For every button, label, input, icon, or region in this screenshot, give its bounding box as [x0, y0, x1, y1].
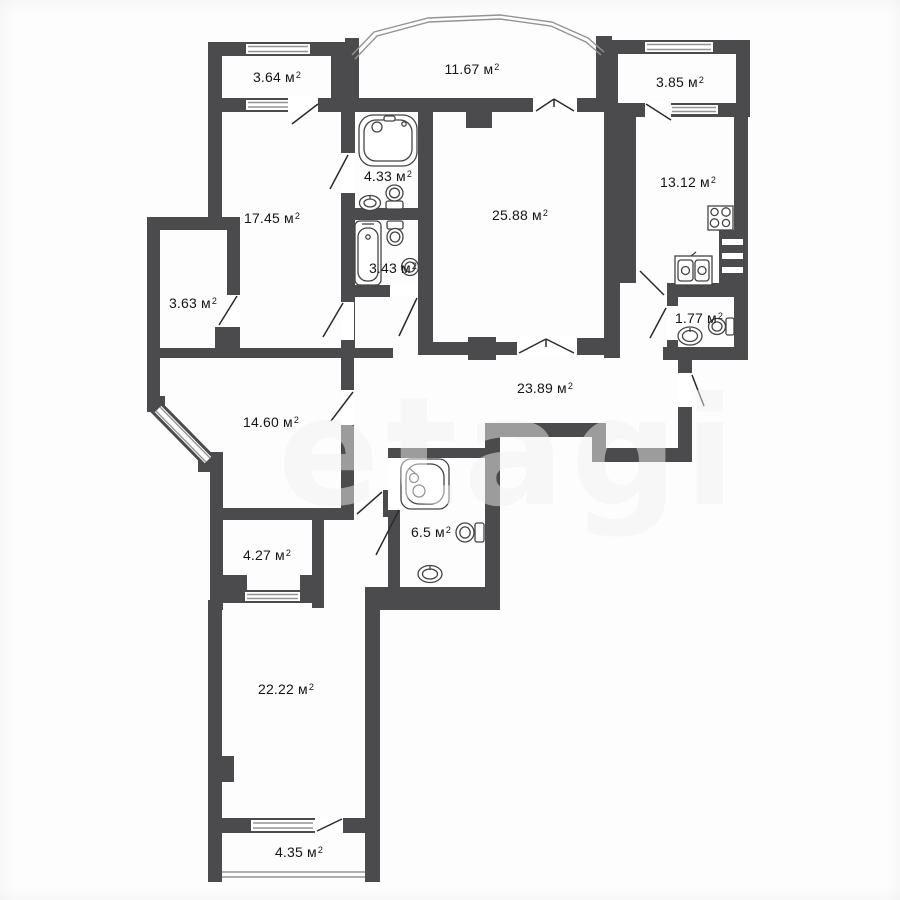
- room-area-label-kitchen: 13.12м2: [660, 174, 716, 190]
- room-area-unit: м: [401, 260, 411, 276]
- room-area-superscript: 2: [412, 261, 417, 271]
- room-area-unit: м: [557, 380, 567, 396]
- room-area-label-wc: 1.77м2: [675, 310, 723, 326]
- room-area-superscript: 2: [212, 296, 217, 306]
- room-area-label-room-upper-left: 17.45м2: [244, 210, 300, 226]
- toilet-icon: [386, 185, 403, 209]
- room-area-label-balcony-bottom: 4.35м2: [275, 844, 323, 860]
- room-area-superscript: 2: [718, 311, 723, 321]
- room-area-value: 17.45: [244, 210, 280, 226]
- room-area-value: 3.63: [169, 295, 197, 311]
- floor-plan: etagi: [0, 0, 900, 900]
- room-area-unit: м: [283, 414, 293, 430]
- corner-washbasin-icon: [359, 115, 417, 166]
- room-area-label-balcony-top-left: 3.64м2: [253, 69, 301, 85]
- room-area-label-room-middle-left: 14.60м2: [243, 414, 299, 430]
- shower-icon: [401, 459, 449, 509]
- room-area-value: 22.22: [258, 681, 294, 697]
- room-area-value: 1.77: [675, 310, 703, 326]
- room-area-label-balcony-top-right: 3.85м2: [656, 74, 704, 90]
- double-sink-icon: [675, 252, 712, 285]
- room-area-superscript: 2: [446, 525, 451, 535]
- room-area-unit: м: [707, 310, 717, 326]
- room-area-superscript: 2: [286, 548, 291, 558]
- room-area-value: 3.64: [253, 69, 281, 85]
- walls-group: [147, 36, 750, 882]
- room-area-label-balcony-top-center: 11.67м2: [444, 61, 499, 77]
- room-area-label-hallway: 23.89м2: [517, 380, 573, 396]
- room-area-value: 4.27: [243, 547, 271, 563]
- floor-plan-drawing: [0, 0, 900, 900]
- washbasin-icon: [418, 566, 442, 583]
- room-area-value: 4.35: [275, 844, 303, 860]
- room-area-value: 3.85: [656, 74, 684, 90]
- room-area-unit: м: [532, 207, 542, 223]
- toilet-icon: [387, 221, 403, 246]
- room-area-superscript: 2: [295, 211, 300, 221]
- room-area-superscript: 2: [568, 381, 573, 391]
- room-area-label-bathroom-upper: 4.33м2: [364, 168, 412, 184]
- room-area-value: 11.67: [444, 61, 479, 77]
- room-area-label-closet: 4.27м2: [243, 547, 291, 563]
- room-area-unit: м: [307, 844, 317, 860]
- stove-icon: [708, 206, 733, 230]
- room-area-value: 23.89: [517, 380, 553, 396]
- room-area-label-storage-left: 3.63м2: [169, 295, 217, 311]
- room-area-unit: м: [396, 168, 406, 184]
- room-area-value: 13.12: [660, 174, 696, 190]
- room-area-value: 14.60: [243, 414, 279, 430]
- room-area-superscript: 2: [407, 169, 412, 179]
- washbasin-icon: [360, 196, 381, 211]
- room-area-superscript: 2: [296, 70, 301, 80]
- room-area-superscript: 2: [711, 175, 716, 185]
- vent-shaft-icon: [722, 239, 743, 273]
- toilet-icon: [456, 523, 484, 542]
- room-area-label-bathroom-lower: 6.5м2: [411, 524, 451, 540]
- room-area-label-living-room: 25.88м2: [492, 207, 548, 223]
- room-area-unit: м: [435, 524, 445, 540]
- room-area-unit: м: [483, 61, 493, 77]
- room-area-superscript: 2: [494, 62, 499, 72]
- room-area-value: 6.5: [411, 524, 431, 540]
- room-area-superscript: 2: [318, 845, 323, 855]
- room-area-value: 4.33: [364, 168, 392, 184]
- room-area-value: 25.88: [492, 207, 528, 223]
- room-area-superscript: 2: [543, 208, 548, 218]
- room-area-unit: м: [275, 547, 285, 563]
- room-area-unit: м: [285, 69, 295, 85]
- room-area-unit: м: [700, 174, 710, 190]
- room-area-superscript: 2: [309, 682, 314, 692]
- room-area-unit: м: [201, 295, 211, 311]
- washbasin-icon: [678, 327, 702, 345]
- room-area-superscript: 2: [699, 75, 704, 85]
- room-area-value: 3.43: [369, 260, 397, 276]
- room-area-unit: м: [298, 681, 308, 697]
- room-area-label-bathroom-middle: 3.43м2: [369, 260, 417, 276]
- room-area-label-bedroom-lower: 22.22м2: [258, 681, 314, 697]
- room-area-unit: м: [688, 74, 698, 90]
- room-area-superscript: 2: [294, 415, 299, 425]
- room-area-unit: м: [284, 210, 294, 226]
